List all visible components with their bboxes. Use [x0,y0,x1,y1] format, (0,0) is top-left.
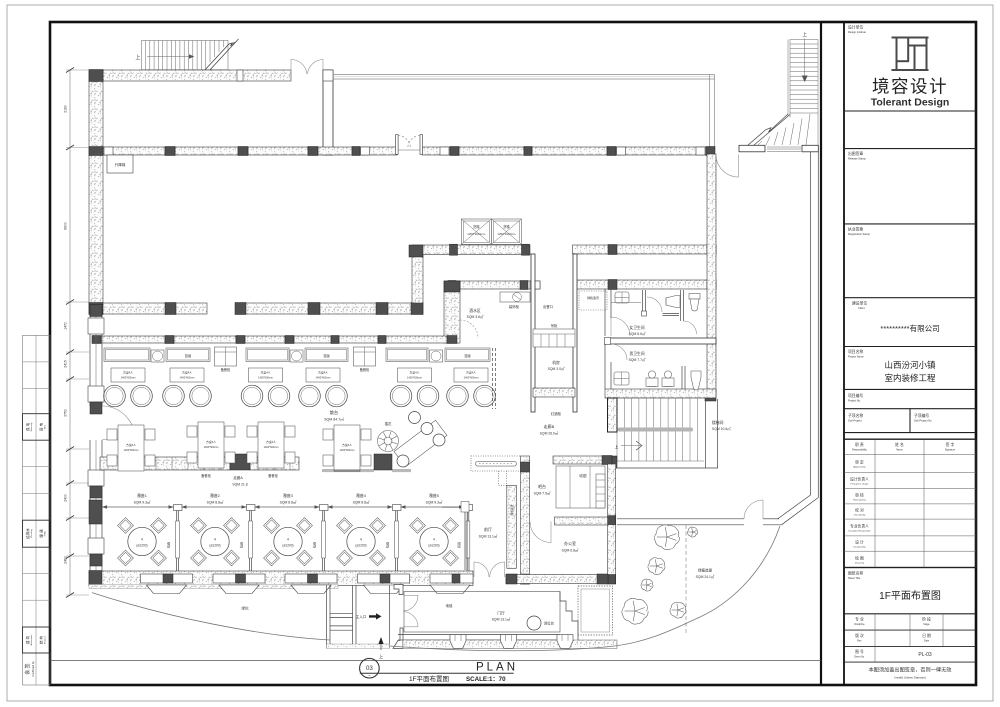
svg-text:Release Stamp: Release Stamp [848,157,866,161]
svg-text:Discipline Responsible: Discipline Responsible [848,531,871,533]
svg-text:办公室: 办公室 [564,540,576,546]
svg-text:专 业: 专 业 [855,617,864,622]
svg-text:上: 上 [802,31,807,37]
svg-text:Project Name: Project Name [848,355,864,359]
svg-text:Stage: Stage [923,623,930,626]
svg-text:挂画: 挂画 [185,353,191,358]
svg-text:03: 03 [366,665,373,672]
svg-text:绿植造景: 绿植造景 [587,295,599,300]
svg-text:挂画: 挂画 [385,542,390,548]
svg-text:方桌4人: 方桌4人 [266,440,276,444]
svg-text:挂画: 挂画 [312,542,317,548]
svg-text:雅座5: 雅座5 [429,493,439,498]
svg-text:方桌4人: 方桌4人 [318,371,328,375]
svg-text:建 筑: 建 筑 [25,636,30,645]
svg-text:女卫生间: 女卫生间 [629,325,644,330]
svg-text:SQM 26.0㎡: SQM 26.0㎡ [540,431,559,436]
svg-text:升降梯: 升降梯 [115,162,126,167]
svg-text:子项编号: 子项编号 [914,413,929,418]
svg-text:SQM 8.6㎡: SQM 8.6㎡ [629,331,646,336]
svg-text:绿化: 绿化 [241,606,249,611]
svg-text:1400*600mm: 1400*600mm [340,449,355,452]
svg-text:1400*600mm: 1400*600mm [204,446,219,449]
svg-text:备餐柜: 备餐柜 [201,473,211,478]
svg-text:会 签: 会 签 [24,663,31,674]
svg-text:2750: 2750 [64,409,68,417]
svg-text:1400*600mm: 1400*600mm [264,446,279,449]
svg-text:插花: 插花 [385,421,392,426]
svg-text:6600: 6600 [64,222,68,230]
svg-text:1250*1100mm: 1250*1100mm [467,232,486,236]
svg-text:Tolerant Design: Tolerant Design [871,97,950,109]
svg-text:挂画: 挂画 [323,353,329,358]
svg-text:(ø1200): (ø1200) [355,544,366,548]
svg-text:方桌4人: 方桌4人 [126,443,136,447]
svg-text:SQM 7.7㎡: SQM 7.7㎡ [629,357,646,362]
svg-text:子项名称: 子项名称 [848,413,863,418]
svg-text:前厅: 前厅 [484,526,492,532]
svg-text:(ø1200): (ø1200) [136,544,147,548]
svg-text:Discipline: Discipline [854,623,865,626]
svg-text:SQM 8.8㎡: SQM 8.8㎡ [207,500,224,505]
svg-text:校 对: 校 对 [855,508,864,513]
svg-text:设计单位: 设计单位 [848,25,863,30]
svg-text:方桌4人: 方桌4人 [410,371,420,375]
svg-text:雅座1: 雅座1 [137,493,147,498]
svg-text:**********有限公司: **********有限公司 [880,323,939,333]
svg-text:境容设计: 境容设计 [872,77,948,97]
svg-text:Invalid Unless Stamped: Invalid Unless Stamped [894,676,926,680]
svg-text:1250*1100mm: 1250*1100mm [497,232,516,236]
svg-text:主入口: 主入口 [356,614,367,619]
svg-text:设计负责人: 设计负责人 [850,476,869,481]
svg-text:设 计: 设 计 [855,540,864,545]
svg-text:PL-03: PL-03 [918,652,932,658]
svg-text:出餐口: 出餐口 [543,304,553,309]
svg-text:SQM 84.7㎡: SQM 84.7㎡ [324,417,344,422]
svg-text:Design Institute: Design Institute [848,30,866,34]
svg-text:Rev.: Rev. [857,640,862,643]
svg-text:绿植造景: 绿植造景 [510,504,514,515]
svg-text:雅座3: 雅座3 [283,493,293,498]
svg-text:2460: 2460 [64,556,68,564]
svg-text:4: 4 [287,538,289,542]
svg-text:绿植造景: 绿植造景 [698,568,713,573]
svg-text:Confirmed by: Confirmed by [31,661,35,677]
svg-text:职 责: 职 责 [855,442,864,447]
svg-text:收银: 收银 [579,473,587,478]
svg-text:SQM 21.8: SQM 21.8 [232,483,247,487]
svg-text:SQM 8.8㎡: SQM 8.8㎡ [280,500,297,505]
svg-text:方桌4人: 方桌4人 [206,440,216,444]
svg-text:备餐柜: 备餐柜 [268,473,278,478]
svg-text:强 电: 强 电 [25,423,30,432]
svg-text:挂画: 挂画 [464,353,470,358]
svg-text:方桌4人: 方桌4人 [182,371,192,375]
svg-text:SQM 10.6㎡: SQM 10.6㎡ [712,426,731,431]
svg-text:山西汾河小镇: 山西汾河小镇 [884,360,936,370]
svg-text:4: 4 [433,538,435,542]
svg-text:Reviewed by: Reviewed by [853,499,866,501]
svg-text:方桌4人: 方桌4人 [466,371,476,375]
svg-text:Drawn by: Drawn by [855,561,865,564]
svg-text:Responsibility: Responsibility [852,449,868,452]
svg-text:SQM 13.1㎡: SQM 13.1㎡ [492,617,511,622]
svg-text:审 定: 审 定 [855,459,864,464]
svg-text:雅座4: 雅座4 [356,493,366,498]
svg-text:PLAN: PLAN [476,662,518,674]
svg-text:给排水: 给排水 [25,528,30,539]
svg-text:审 核: 审 核 [855,492,864,497]
svg-text:姓 名: 姓 名 [895,442,904,447]
svg-text:地毯: 地毯 [446,603,453,608]
svg-text:方桌4人: 方桌4人 [123,371,133,375]
svg-text:暖 通: 暖 通 [38,529,43,538]
svg-text:Registration Stamp: Registration Stamp [848,232,871,236]
svg-text:结 构: 结 构 [38,636,43,645]
svg-text:HVAC: HVAC [44,530,47,536]
svg-text:(ø1200): (ø1200) [282,544,293,548]
svg-text:1400*600mm: 1400*600mm [316,377,331,380]
svg-text:1400*600mm: 1400*600mm [180,377,195,380]
svg-text:1470: 1470 [64,322,68,330]
svg-text:机房: 机房 [552,360,560,365]
svg-text:Name: Name [896,449,903,452]
svg-text:项目名称: 项目名称 [848,349,863,354]
svg-text:上: 上 [135,54,140,61]
svg-text:(ø1200): (ø1200) [428,544,439,548]
svg-text:1400*600mm: 1400*600mm [124,449,139,452]
svg-text:SQM 24.1㎡: SQM 24.1㎡ [696,574,715,579]
svg-text:红酒柜: 红酒柜 [551,411,562,416]
svg-text:2160: 2160 [64,105,68,113]
svg-text:1F平面布置图: 1F平面布置图 [409,674,449,683]
svg-text:-: - [368,674,370,680]
svg-text:Sub-Project: Sub-Project [848,419,862,423]
svg-text:雅座2: 雅座2 [210,493,220,498]
svg-text:男卫生间: 男卫生间 [629,351,644,356]
svg-text:SCALE:1：70: SCALE:1：70 [466,676,506,683]
svg-text:酒水区: 酒水区 [469,308,481,313]
svg-text:备餐柜: 备餐柜 [221,367,231,372]
svg-text:1400*600mm: 1400*600mm [407,377,422,380]
svg-text:Electricity: Electricity [30,423,33,432]
svg-text:散台: 散台 [330,409,338,416]
svg-text:SQM 13.1㎡: SQM 13.1㎡ [479,534,498,539]
svg-text:SQM 8.8㎡: SQM 8.8㎡ [353,500,370,505]
svg-text:2415: 2415 [64,360,68,368]
svg-text:挂画: 挂画 [166,542,171,548]
svg-text:Sub-Project No.: Sub-Project No. [914,419,933,423]
svg-text:Principal in charge: Principal in charge [851,482,870,485]
svg-text:4: 4 [141,538,143,542]
svg-text:专业负责人: 专业负责人 [850,524,869,529]
svg-text:项目编号: 项目编号 [848,393,863,398]
svg-text:吧台: 吧台 [538,483,546,489]
svg-text:1400*600mm: 1400*600mm [258,377,273,380]
svg-text:执业签章: 执业签章 [848,227,863,232]
svg-text:图纸名称: 图纸名称 [848,571,863,576]
svg-text:版 次: 版 次 [855,633,864,638]
svg-text:建设单位: 建设单位 [852,301,867,306]
svg-text:SQM 6.8㎡: SQM 6.8㎡ [562,548,579,553]
svg-text:绘 图: 绘 图 [855,555,864,560]
svg-text:Client: Client [858,306,865,310]
svg-text:1F平面布置图: 1F平面布置图 [879,590,941,602]
svg-text:备餐柜: 备餐柜 [360,367,370,372]
svg-text:挂画: 挂画 [456,542,461,548]
svg-text:挂画: 挂画 [239,542,244,548]
svg-text:4: 4 [360,538,362,542]
svg-text:Project No.: Project No. [848,399,861,403]
svg-text:Date: Date [924,640,930,643]
svg-text:货梯: 货梯 [503,224,510,229]
svg-text:装饰柜: 装饰柜 [509,304,520,309]
svg-text:1400*600mm: 1400*600mm [121,377,136,380]
svg-text:SQM 3.0㎡: SQM 3.0㎡ [548,366,565,371]
svg-text:走廊A: 走廊A [233,475,243,480]
svg-text:Designed by: Designed by [853,547,866,549]
svg-text:1400*600mm: 1400*600mm [464,377,479,380]
svg-text:方桌4人: 方桌4人 [261,371,271,375]
svg-text:本图须加盖出图签章，否则一律无效: 本图须加盖出图签章，否则一律无效 [868,666,952,674]
svg-text:SQM 9.3㎡: SQM 9.3㎡ [134,500,151,505]
svg-text:吊柜: 吊柜 [551,323,558,328]
svg-text:货梯: 货梯 [473,224,480,229]
svg-text:弱 电: 弱 电 [38,423,43,432]
svg-text:室内装修工程: 室内装修工程 [884,373,936,383]
svg-text:上: 上 [615,444,619,450]
svg-text:走廊B: 走廊B [544,423,555,429]
svg-text:Sheet Title: Sheet Title [848,576,861,580]
svg-text:Approved by: Approved by [853,465,866,468]
svg-text:上: 上 [379,653,383,659]
svg-text:2400: 2400 [64,494,68,502]
svg-text:签 字: 签 字 [946,442,955,447]
svg-text:日 期: 日 期 [922,633,931,638]
svg-text:SQM 3.6㎡: SQM 3.6㎡ [467,314,484,319]
svg-text:方桌4人: 方桌4人 [342,443,352,447]
svg-text:(ø1200): (ø1200) [209,544,220,548]
svg-text:SQM 7.5㎡: SQM 7.5㎡ [534,491,551,496]
svg-text:Checked by: Checked by [854,515,866,517]
svg-text:SQM 9.3㎡: SQM 9.3㎡ [426,500,443,505]
svg-text:Structure: Structure [44,635,47,644]
svg-text:图 号: 图 号 [855,649,864,654]
svg-text:楼梯间: 楼梯间 [712,420,724,425]
svg-text:阶 段: 阶 段 [922,617,931,622]
svg-text:出图签章: 出图签章 [848,151,863,156]
svg-text:门厅: 门厅 [497,611,505,616]
svg-text:Signature: Signature [945,449,956,452]
svg-text:Plumbing: Plumbing [31,529,33,537]
svg-text:Architecture: Architecture [30,634,33,646]
svg-text:4: 4 [214,538,216,542]
svg-text:领位台: 领位台 [544,621,555,626]
svg-text:Sheet No.: Sheet No. [854,656,865,659]
